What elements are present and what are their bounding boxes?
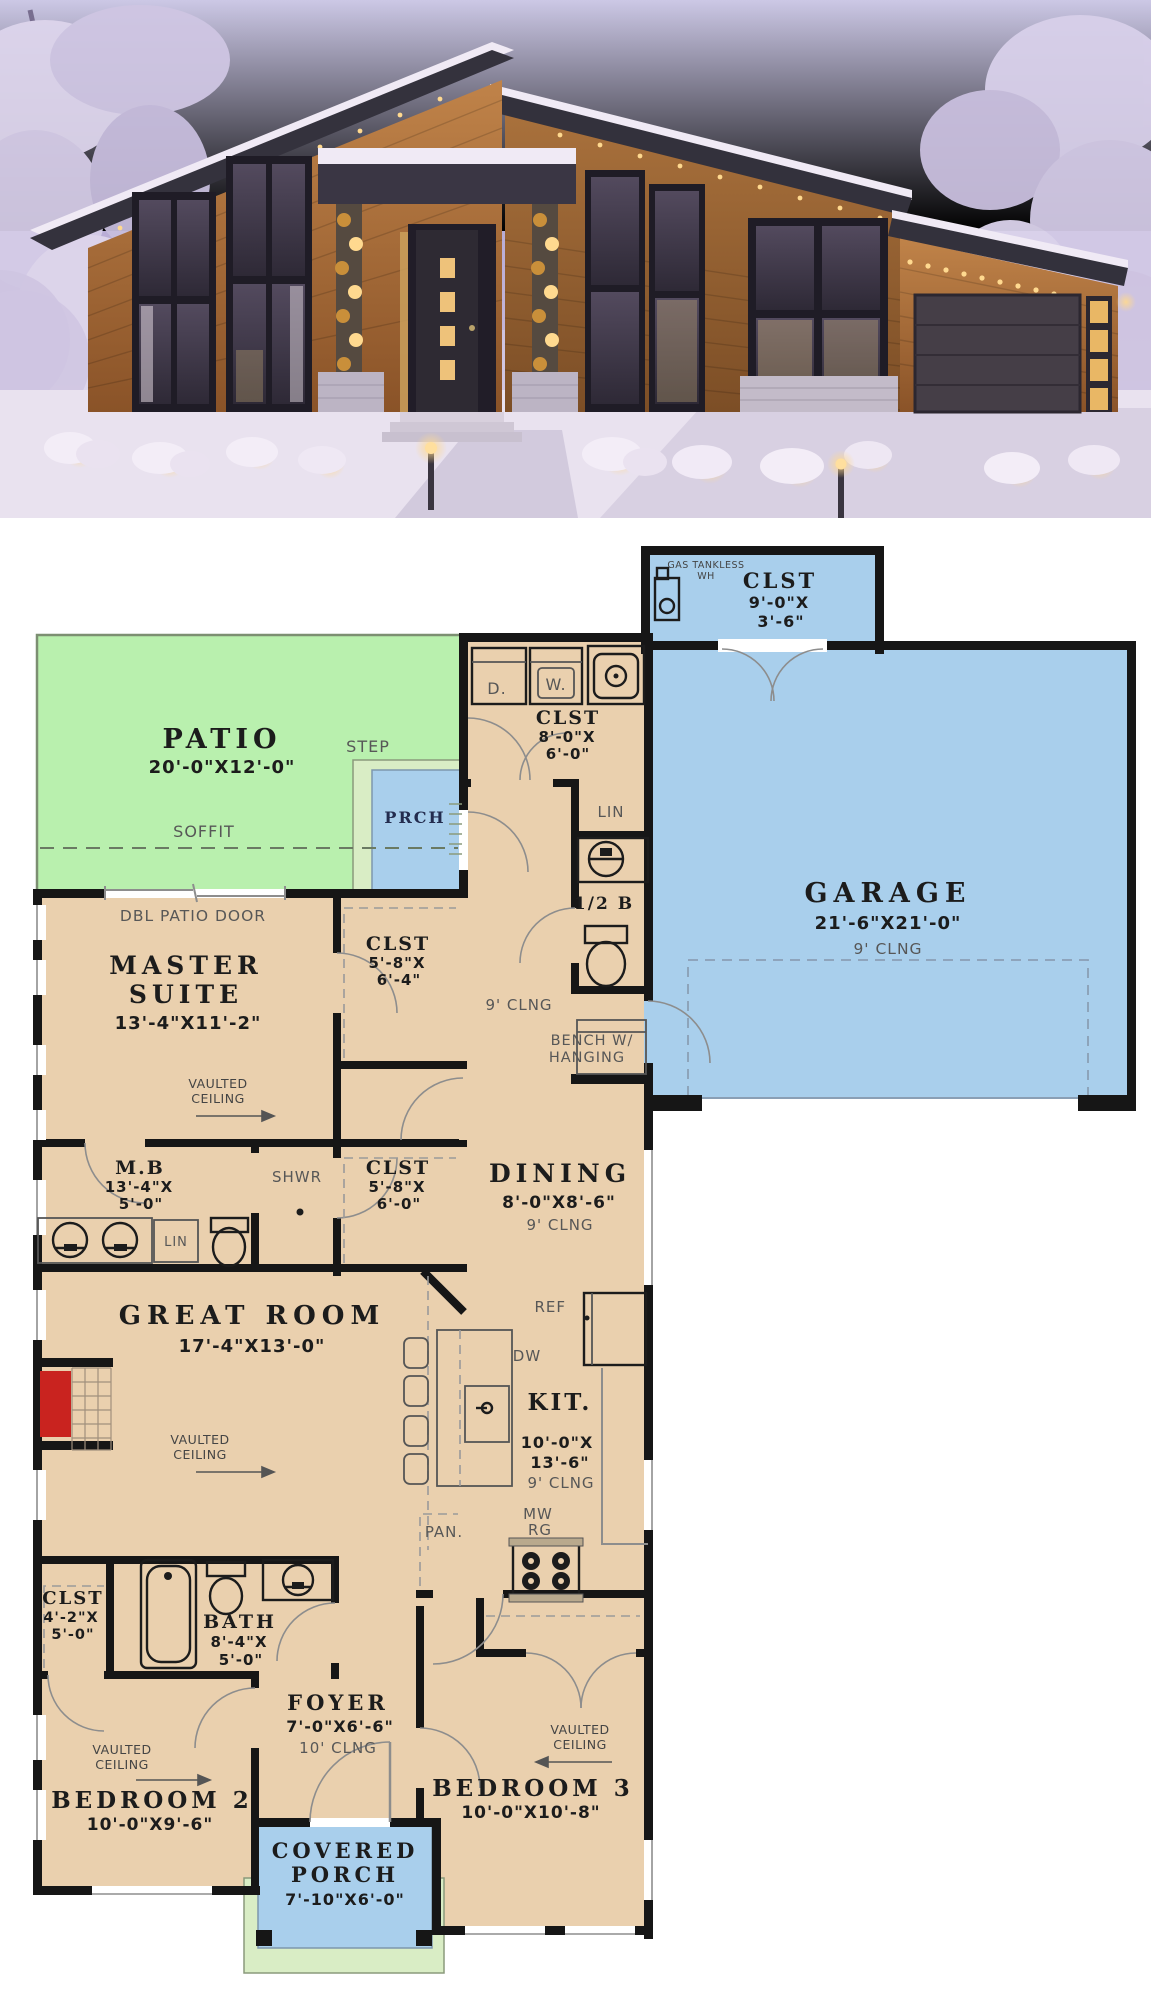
clst-b2-d1: 4'-2"X [43,1610,98,1626]
entry-canopy [318,164,576,204]
wh-label-1: GAS TANKLESS [667,560,744,571]
patio-label: PATIO [162,724,281,755]
garage-area [648,645,1130,1098]
half-bath-label: 1/2 B [574,894,634,914]
wh-clst-d2: 3'-6" [757,612,804,631]
garage-label: GARAGE [804,878,971,909]
floor-plan: PATIO 20'-0"X12'-0" STEP SOFFIT PRCH GAS… [0,518,1151,2000]
master-label-2: SUITE [129,980,243,1009]
b3-vaulted-2: CEILING [553,1737,607,1752]
foyer-dims: 7'-0"X6'-6" [286,1717,394,1736]
house-photo [0,0,1151,518]
mb-d2: 5'-0" [119,1195,164,1213]
entry-porch [318,148,578,442]
washer-label: W. [545,675,566,694]
porch-label-2: PORCH [291,1862,399,1887]
wh-clst-d1: 9'-0"X [749,593,809,612]
clst-m2-d2: 6'-0" [377,1195,422,1213]
house-plan-listing: PATIO 20'-0"X12'-0" STEP SOFFIT PRCH GAS… [0,0,1151,2000]
b3-vaulted-1: VAULTED [550,1722,609,1737]
bench-label-2: HANGING [549,1050,625,1066]
kit-clng: 9' CLNG [527,1474,594,1492]
clst-b2-label: CLST [42,1588,103,1609]
stone-wainscot [740,376,898,412]
wall-sconce [1116,292,1136,312]
laundry-clst-label: CLST [536,707,600,729]
clst-m2-d1: 5'-8"X [368,1178,425,1196]
lin-mb-label: LIN [164,1235,188,1250]
mb-label: M.B [115,1157,165,1179]
firebox [40,1371,71,1437]
clst-m1-label: CLST [366,933,430,955]
bench-label-1: BENCH W/ [551,1033,634,1049]
hall-clng-label: 9' CLNG [485,996,552,1014]
clst-m1-d2: 6'-4" [377,971,422,989]
master-vaulted-1: VAULTED [188,1076,247,1091]
shwr-label: SHWR [272,1168,322,1186]
laundry-clst-d1: 8'-0"X [538,728,595,746]
master-vaulted-2: CEILING [191,1091,245,1106]
bedroom3-label: BEDROOM 3 [432,1775,634,1802]
prch-label: PRCH [384,808,445,827]
bedroom2-dims: 10'-0"X9'-6" [87,1815,213,1835]
prch-area [372,770,460,893]
bath-d1: 8'-4"X [210,1633,267,1651]
b2-vaulted-2: CEILING [95,1757,149,1772]
kit-label: KIT. [528,1389,593,1416]
foyer-clng: 10' CLNG [299,1739,377,1757]
bath-d2: 5'-0" [219,1651,264,1669]
dw-label: DW [513,1347,541,1365]
great-room-dims: 17'-4"X13'-0" [179,1336,326,1357]
b2-vaulted-1: VAULTED [92,1742,151,1757]
bath-label: BATH [203,1611,277,1633]
rg-label: RG [528,1521,552,1539]
shower-drain [297,1209,304,1216]
patio-dims: 20'-0"X12'-0" [149,757,296,778]
dining-dims: 8'-0"X8'-6" [502,1193,616,1213]
step-label: STEP [346,737,390,756]
great-room-label: GREAT ROOM [119,1301,385,1331]
kit-d1: 10'-0"X [521,1433,594,1452]
garage-door-window-strip [1086,296,1112,412]
foyer-label: FOYER [287,1690,389,1715]
porch-post-left [256,1930,272,1946]
pan-label: PAN. [425,1523,463,1541]
dryer-label: D. [487,679,506,698]
master-dims: 13'-4"X11'-2" [115,1013,262,1034]
dining-label: DINING [489,1159,631,1188]
garage-dims: 21'-6"X21'-0" [815,913,962,934]
great-vaulted-1: VAULTED [170,1432,229,1447]
ref-label: REF [534,1298,566,1316]
laundry-clst-d2: 6'-0" [546,745,591,763]
mb-d1: 13'-4"X [105,1178,174,1196]
kit-d2: 13'-6" [530,1453,589,1472]
porch-dims: 7'-10"X6'-0" [285,1890,405,1909]
dbl-patio-door-label: DBL PATIO DOOR [120,907,266,925]
garage-clng: 9' CLNG [853,940,922,958]
wh-label-2: WH [697,571,715,582]
wh-clst-label: CLST [743,568,817,593]
front-door [416,230,478,412]
soffit-label: SOFFIT [173,822,235,841]
clst-m1-d1: 5'-8"X [368,954,425,972]
garage-door [915,295,1080,412]
bedroom3-dims: 10'-0"X10'-8" [461,1803,600,1823]
bedroom2-label: BEDROOM 2 [51,1787,253,1814]
front-windows-right [585,170,705,412]
great-vaulted-2: CEILING [173,1447,227,1462]
clst-b2-d2: 5'-0" [51,1627,94,1643]
clst-m2-label: CLST [366,1157,430,1179]
master-label-1: MASTER [109,951,263,980]
porch-label-1: COVERED [272,1838,419,1863]
dining-clng: 9' CLNG [526,1216,593,1234]
porch-post-right [416,1930,432,1946]
lin-hall-label: LIN [597,803,624,821]
